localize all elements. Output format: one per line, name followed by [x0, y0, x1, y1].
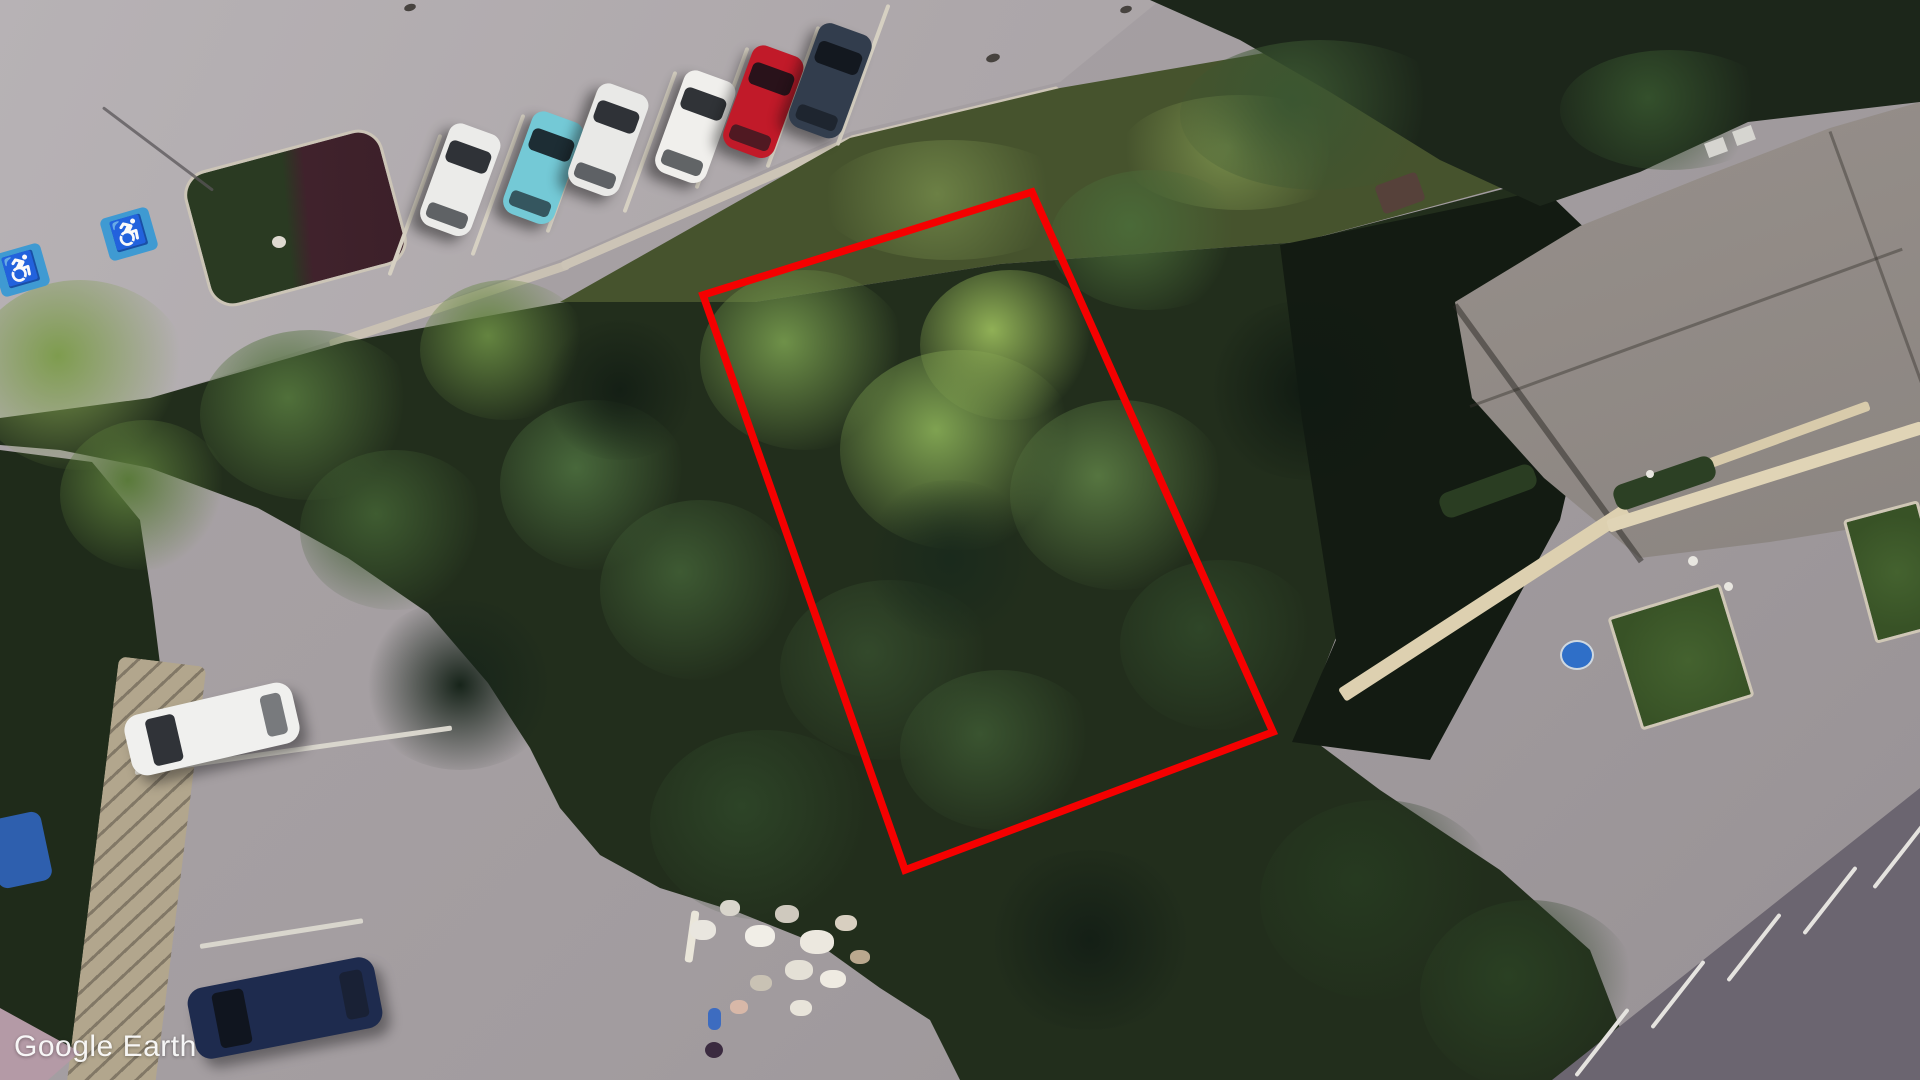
parcel-boundary-polygon	[703, 192, 1273, 870]
google-earth-watermark: Google Earth	[14, 1030, 197, 1064]
google-earth-aerial-view: ♿ ♿	[0, 0, 1920, 1080]
parcel-boundary-overlay	[0, 0, 1920, 1080]
